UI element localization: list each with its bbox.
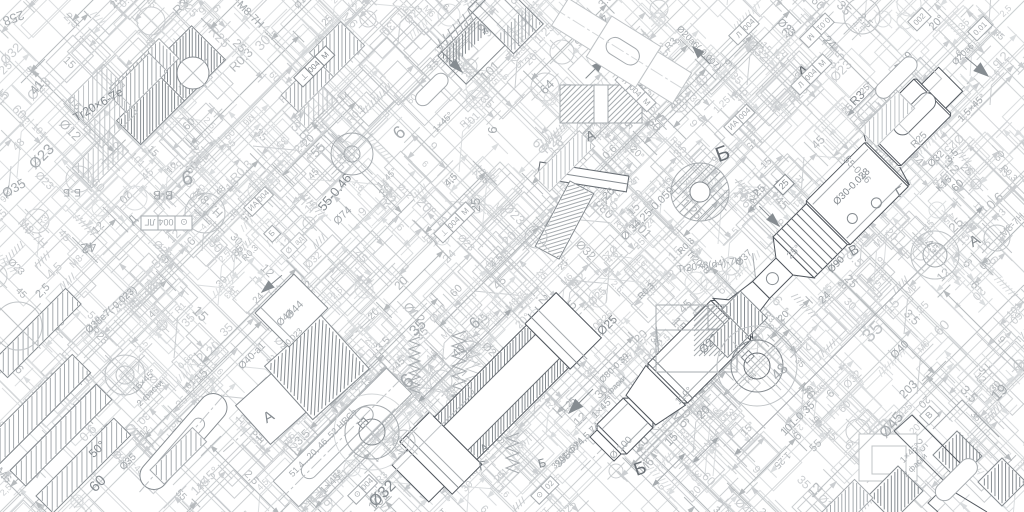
svg-text:Ø23: Ø23 <box>33 169 56 192</box>
svg-text:55: 55 <box>173 487 189 503</box>
svg-text:25: 25 <box>556 258 570 272</box>
svg-text:45: 45 <box>139 166 156 183</box>
svg-text:15: 15 <box>535 505 551 512</box>
svg-text:48: 48 <box>10 136 27 153</box>
svg-text:R0.3: R0.3 <box>226 45 256 75</box>
svg-text:Ø23: Ø23 <box>5 257 26 278</box>
svg-text:203: 203 <box>896 377 920 401</box>
svg-text:35: 35 <box>217 320 237 340</box>
svg-text:Ø25: Ø25 <box>586 285 609 308</box>
svg-text:15°: 15° <box>739 420 757 438</box>
svg-text:6: 6 <box>420 159 431 170</box>
svg-text:30: 30 <box>841 296 858 313</box>
svg-text:1.25: 1.25 <box>711 94 733 116</box>
svg-text:45: 45 <box>13 285 29 301</box>
svg-text:M6: M6 <box>915 339 931 355</box>
svg-text:Ø25: Ø25 <box>141 278 162 299</box>
svg-text:6: 6 <box>478 503 491 512</box>
svg-text:Ø12: Ø12 <box>396 181 415 200</box>
svg-text:12: 12 <box>570 409 590 429</box>
svg-text:R1: R1 <box>239 509 254 512</box>
svg-text:M6: M6 <box>902 281 918 297</box>
svg-text:3.5: 3.5 <box>374 335 393 354</box>
svg-text:2,5: 2,5 <box>998 3 1014 19</box>
svg-text:30: 30 <box>687 93 703 109</box>
svg-text:4.5: 4.5 <box>711 422 727 438</box>
svg-text:2,5: 2,5 <box>329 285 345 301</box>
svg-text:Ø32: Ø32 <box>303 250 324 271</box>
svg-text:Ø23: Ø23 <box>455 232 476 253</box>
svg-text:25: 25 <box>756 506 772 512</box>
svg-text:35: 35 <box>793 355 807 369</box>
svg-text:2,5: 2,5 <box>61 9 83 31</box>
svg-text:45: 45 <box>146 305 162 321</box>
svg-text:15: 15 <box>145 144 161 160</box>
